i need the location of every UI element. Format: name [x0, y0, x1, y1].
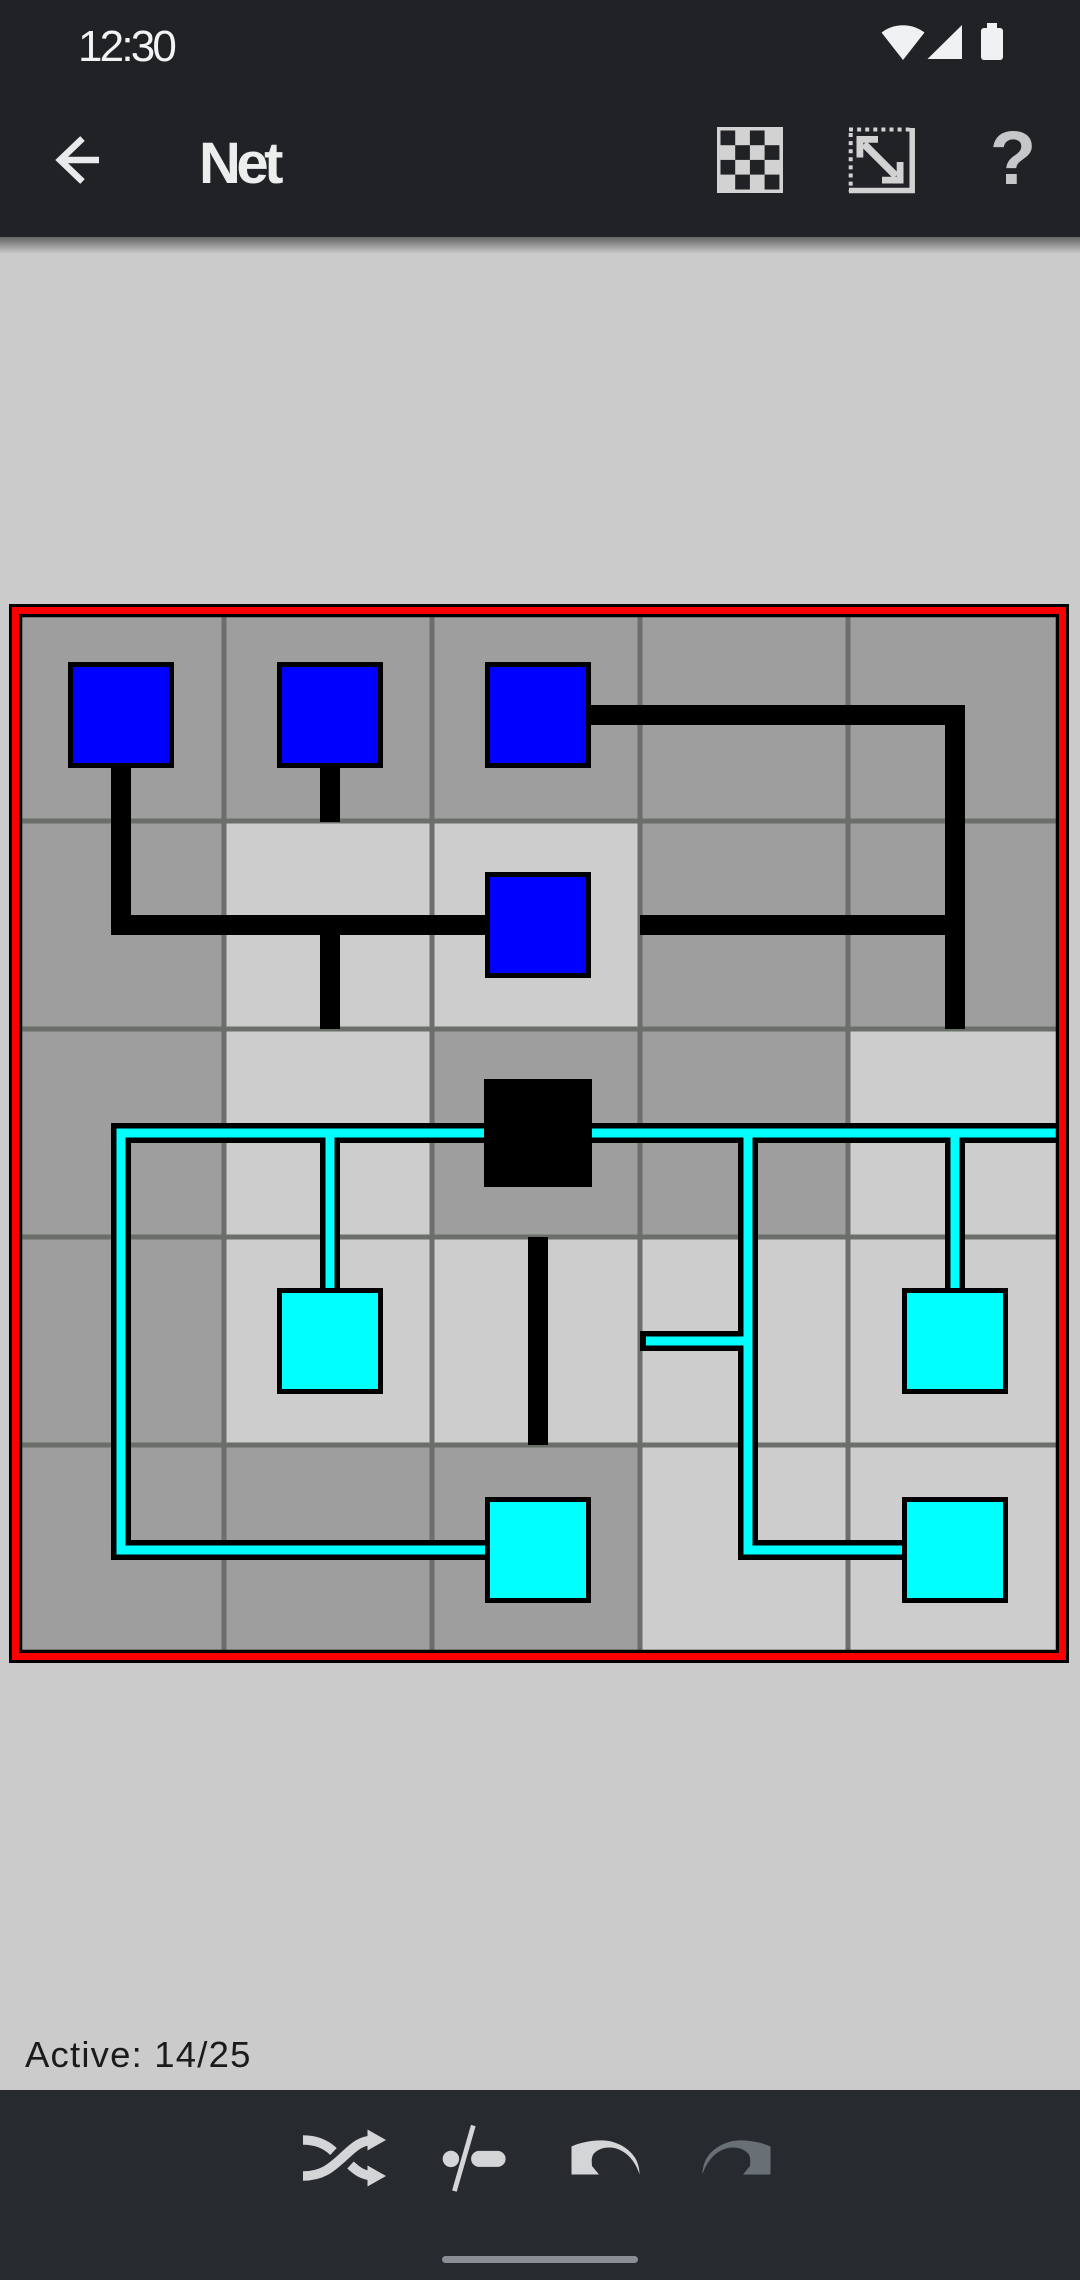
svg-text:?: ? [990, 116, 1036, 201]
svg-text:Active: 14/25: Active: 14/25 [25, 2034, 252, 2075]
svg-text:12:30: 12:30 [78, 22, 175, 71]
svg-text:Net: Net [199, 131, 283, 196]
